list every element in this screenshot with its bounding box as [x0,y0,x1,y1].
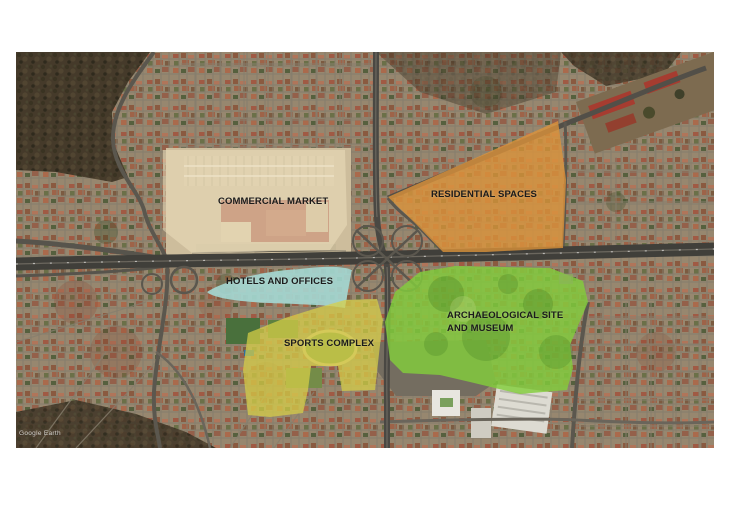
label-residential-spaces: RESIDENTIAL SPACES [431,189,537,200]
label-sports-complex: SPORTS COMPLEX [284,338,374,349]
satellite-base [16,52,714,448]
satellite-map-image: COMMERCIAL MARKET RESIDENTIAL SPACES HOT… [16,52,714,448]
page: COMMERCIAL MARKET RESIDENTIAL SPACES HOT… [0,0,730,516]
label-hotels-and-offices: HOTELS AND OFFICES [226,276,333,287]
google-earth-watermark: Google Earth [19,430,61,437]
label-archaeological-site-line2: AND MUSEUM [447,323,563,336]
label-archaeological-site-line1: ARCHAEOLOGICAL SITE [447,310,563,323]
label-archaeological-site: ARCHAEOLOGICAL SITE AND MUSEUM [447,310,563,335]
label-commercial-market: COMMERCIAL MARKET [218,196,328,207]
